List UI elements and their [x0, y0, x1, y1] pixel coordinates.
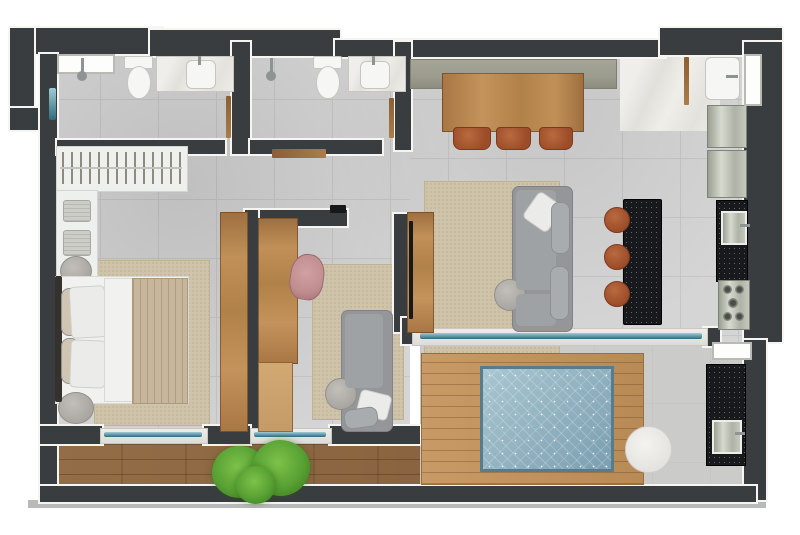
shower-head-2: [266, 71, 276, 81]
bed-pillow-2: [69, 339, 107, 388]
daybed-cushion: [345, 314, 383, 388]
sliding-door-second-room: [254, 432, 326, 437]
faucet-1: [198, 56, 201, 65]
closet-rod: [60, 167, 182, 169]
burner-5: [735, 312, 744, 321]
window-service: [744, 54, 762, 106]
door-bathroom2: [389, 98, 394, 138]
laundry-sink: [705, 57, 740, 100]
plunge-pool: [480, 366, 614, 472]
wall-right-lower: [744, 340, 766, 500]
dining-chair-2: [496, 127, 531, 150]
washer: [707, 105, 747, 148]
nightstand-bottom: [58, 392, 94, 424]
toilet-bowl-2: [316, 66, 340, 99]
kitchen-sink: [721, 211, 747, 245]
door-bathroom1: [226, 96, 231, 138]
sliding-door-living: [420, 333, 702, 339]
shower-arm-1: [81, 58, 84, 72]
bbq-faucet: [735, 432, 745, 435]
vanity-sink-2: [360, 61, 390, 89]
shower-arm-2: [270, 58, 273, 72]
balcony-white-table: [625, 426, 672, 473]
wall-top-main: [335, 40, 665, 57]
folded-clothes-1: [63, 200, 91, 222]
window-bbq: [712, 342, 752, 360]
tv: [409, 221, 413, 319]
dining-chair-1: [453, 127, 491, 150]
entry-door: [684, 57, 689, 105]
sliding-door-bedroom: [104, 432, 202, 437]
bar-stool-2: [604, 244, 630, 270]
wall-bedroom-balcony-a: [40, 426, 102, 444]
wall-bottom: [40, 486, 756, 502]
bed-pillow-1: [69, 285, 108, 339]
folded-clothes-2: [63, 230, 91, 256]
sofa-bolster-2: [550, 266, 569, 320]
bed-blanket: [132, 278, 188, 404]
burner-1: [723, 285, 732, 294]
hall-console-shelf: [272, 149, 326, 158]
toilet-bowl-1: [127, 66, 151, 99]
bedroom-wardrobe: [220, 212, 248, 432]
burner-2: [735, 285, 744, 294]
wall-bathroom-divider: [232, 42, 250, 154]
bbq-sink: [712, 420, 742, 454]
bar-stool-3: [604, 281, 630, 307]
refrigerator: [707, 150, 747, 198]
dining-table: [442, 73, 584, 132]
bar-stool-1: [604, 207, 630, 233]
shower-head-1: [77, 71, 87, 81]
sofa-bolster-1: [551, 202, 570, 254]
window-bathroom1: [57, 54, 115, 74]
kitchen-faucet: [740, 224, 750, 227]
burner-3: [728, 298, 738, 308]
low-wood-shelf: [258, 362, 293, 432]
vanity-sink-1: [186, 60, 216, 89]
burner-4: [723, 312, 732, 321]
laundry-faucet: [726, 75, 738, 78]
glass-left-sliver: [49, 88, 56, 120]
plant-leaf-cluster-3: [236, 466, 276, 504]
door-stop-marker: [330, 205, 346, 213]
floor-plan: [0, 0, 800, 535]
faucet-2: [372, 56, 375, 65]
dining-chair-3: [539, 127, 573, 150]
